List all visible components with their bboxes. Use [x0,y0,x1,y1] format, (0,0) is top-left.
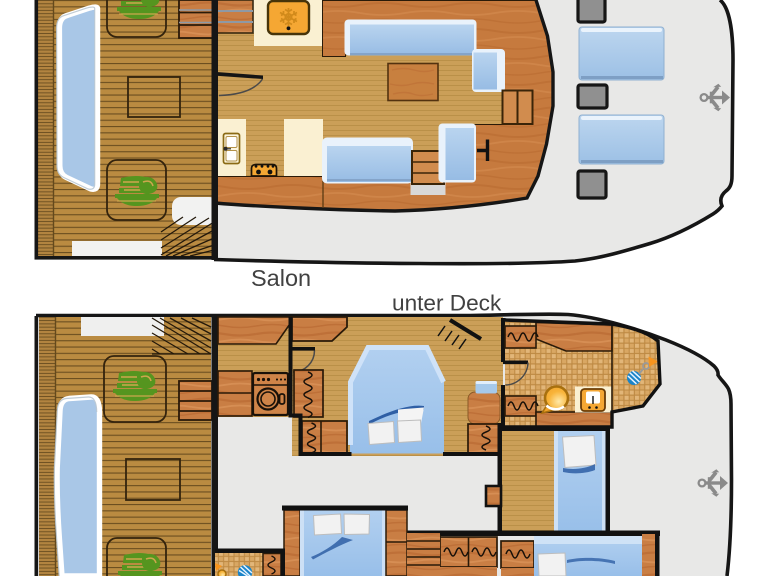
svg-text:Salon: Salon [251,265,311,291]
svg-text:unter Deck: unter Deck [392,291,502,316]
